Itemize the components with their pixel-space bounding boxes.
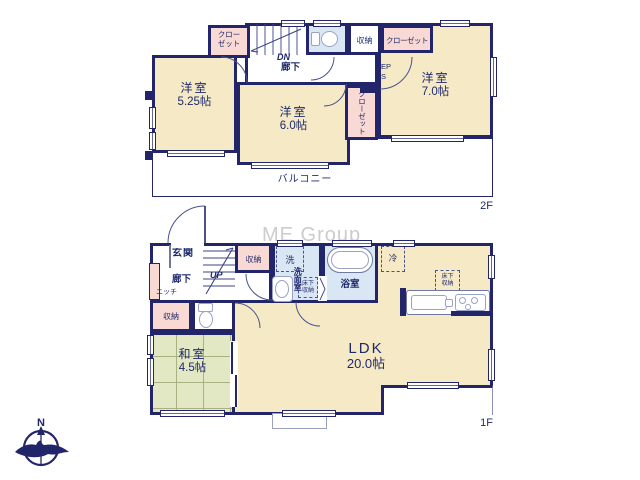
storage-hall: 収納 [235,243,272,273]
stove-burner-icon-1 [459,297,466,304]
ldk-size: 20.0帖 [300,357,432,372]
entrance-label: 玄関 [172,248,194,260]
window-2f-top-2 [313,20,341,27]
underfloor-storage-wash: 床下収納 [298,277,318,298]
room-70-name: 洋室 [378,72,493,86]
refrigerator-space: 冷 [381,246,405,272]
underfloor-storage-kitchen-label: 床下収納 [442,274,454,288]
entrance-step-line [169,245,171,268]
window-1f-left-1 [147,335,154,355]
window-1f-top-1 [277,240,303,247]
window-2f-balcony-1 [167,150,225,157]
wall-stub-2f-2 [145,151,152,160]
closet-top-left: クローゼット [208,25,250,58]
window-2f-right [490,57,497,97]
stairs-up-label: UP [210,270,223,280]
bathroom-door-gap [318,276,327,301]
window-1f-bottom-2 [282,410,336,417]
ldk-label: LDK 20.0帖 [300,340,432,372]
window-2f-top-1 [281,20,305,27]
window-1f-right-1 [488,255,495,279]
balcony-label: バルコニー [240,174,370,186]
pipe-space-notch [360,85,378,93]
wall-stub-2f-1 [145,91,152,100]
toilet-tank-icon-2f [311,32,320,46]
stairs-dn-label: DN [277,52,290,62]
room-525-label: 洋室 5.25帖 [152,82,237,109]
underfloor-storage-wash-label: 床下収納 [302,281,314,295]
underfloor-storage-kitchen: 床下収納 [435,270,460,291]
room-60-label: 洋室 6.0帖 [237,106,350,133]
ldk-name: LDK [300,340,432,357]
sliding-door-panel-2 [235,375,237,407]
room-70-size: 7.0帖 [378,86,493,99]
niche-label: ニッチ [156,289,177,297]
window-2f-balcony-2 [251,162,329,169]
window-1f-top-2 [332,240,372,247]
closet-top-right: クローゼット [381,25,433,53]
porch [381,385,493,415]
floor1-label: 1F [460,417,493,430]
window-2f-balcony-3 [391,135,464,142]
storage-lower-label: 収納 [153,311,189,322]
sliding-door-panel-1 [231,342,233,374]
front-door-gap [171,242,204,248]
storage-hall-label: 収納 [238,254,269,265]
window-1f-right-2 [488,349,495,381]
closet-top-left-label: クローゼット [218,30,241,48]
closet-top-right-label: クローゼット [384,35,430,46]
hallway-2f-label: 廊下 [281,63,300,74]
front-door-arc [168,206,205,243]
window-2f-left-2 [149,132,156,150]
room-60-size: 6.0帖 [237,120,350,133]
floor-plan-canvas: ME Group バルコニー クローゼット 収納 クローゼット クローゼット E… [0,0,640,480]
refrigerator-label: 冷 [382,252,404,264]
washitsu-label: 和室 4.5帖 [150,348,235,375]
washbasin-bowl-icon [275,280,289,298]
washitsu-name: 和室 [150,348,235,362]
stairs-dn-icon [249,24,305,55]
stove-burner-icon-3 [465,304,471,310]
laundry-label: 洗 [277,253,303,266]
window-1f-bottom-1 [160,410,225,417]
bathroom-label: 浴室 [322,280,378,291]
compass-bird-shape [15,441,69,458]
floor2-label: 2F [460,200,493,213]
window-1f-porch [407,382,459,389]
kitchen-wall-bar [451,311,493,316]
north-compass-icon: N [8,408,74,478]
washitsu-size: 4.5帖 [150,362,235,375]
bathtub-inner-icon [331,251,369,269]
window-2f-left-1 [149,107,156,129]
storage-2f-label: 収納 [351,35,378,46]
window-1f-left-2 [147,358,154,386]
storage-lower: 収納 [150,300,192,332]
hallway-1f-label: 廊下 [172,275,191,286]
kitchen-sink-icon [411,295,447,310]
toilet-bowl-icon-2f [321,31,338,47]
room-60-name: 洋室 [237,106,350,120]
window-2f-top-3 [440,20,470,27]
room-525-size: 5.25帖 [152,96,237,109]
closet-center-label: クローゼット [356,90,368,136]
toilet-bowl-icon-1f [199,311,213,328]
room-525-name: 洋室 [152,82,237,96]
window-1f-top-3 [393,240,415,247]
stove-burner-icon-2 [471,297,478,304]
storage-2f: 収納 [348,23,381,55]
kitchen-faucet-icon [445,299,453,307]
room-70-label: 洋室 7.0帖 [378,72,493,99]
